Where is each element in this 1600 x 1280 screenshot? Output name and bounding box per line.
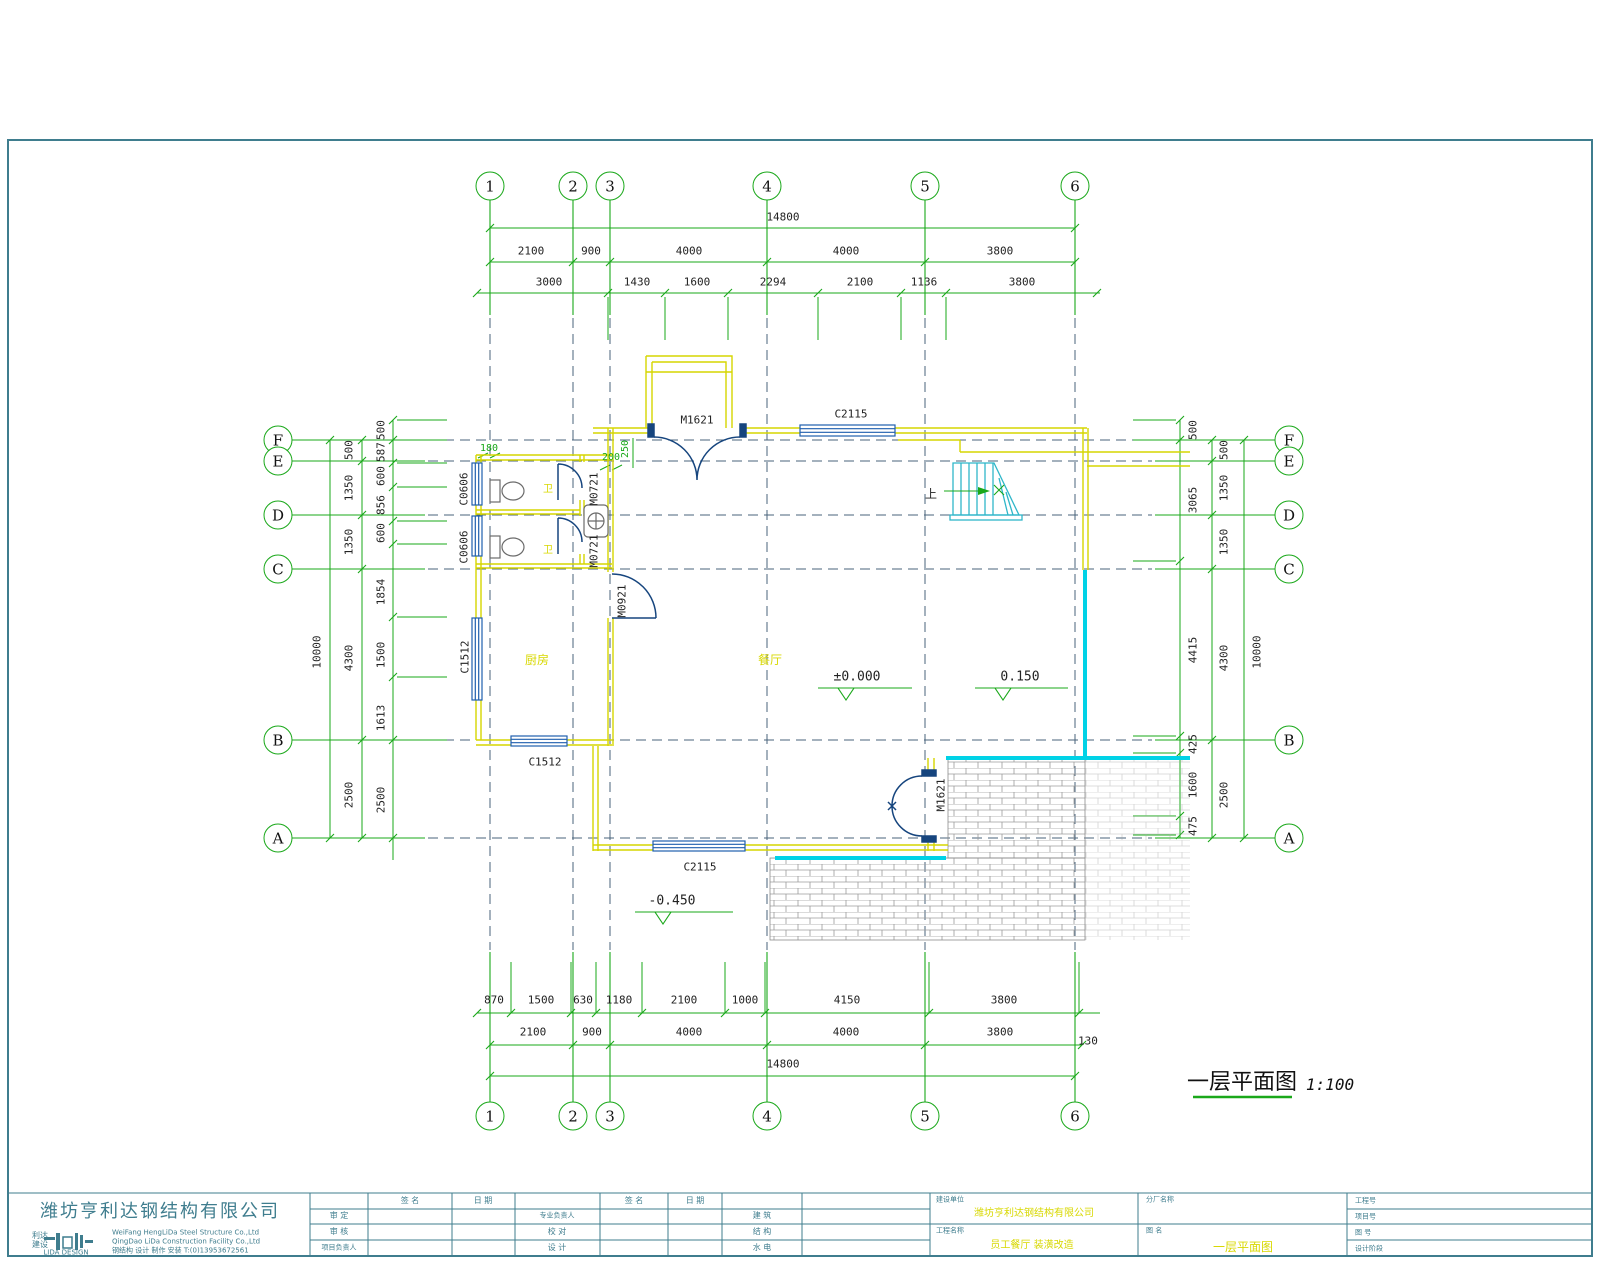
- room-bath-1: 卫: [543, 485, 553, 495]
- grid-bubble-2-top: 2: [559, 172, 588, 201]
- tb-row3-project-lead: 项目负责人: [322, 1245, 357, 1252]
- dim-top-r1-0: 2100: [518, 246, 545, 257]
- dim-top-r2-3: 2294: [760, 277, 787, 288]
- dim-right-mid-4: 2500: [1219, 782, 1230, 809]
- grid-bubble-3-bottom: 3: [596, 1102, 625, 1131]
- dim-right-mid-2: 1350: [1219, 529, 1230, 556]
- tb-row3-design: 设 计: [548, 1244, 567, 1252]
- label-window-bottom: C2115: [683, 862, 716, 873]
- dim-left-mid-4: 2500: [344, 782, 355, 809]
- company-name: 潍坊亨利达钢结构有限公司: [40, 1203, 280, 1221]
- tb-project-value: 员工餐厅 装潢改造: [990, 1241, 1073, 1251]
- dim-right-outer: 10000: [1252, 635, 1263, 668]
- label-window-kitchen-bottom: C1512: [528, 757, 561, 768]
- dim-right-in-0: 500: [1188, 420, 1199, 440]
- tb-no-label-0: 工程号: [1355, 1198, 1376, 1205]
- dim-top-r2-4: 2100: [847, 277, 874, 288]
- tb-owner-label: 建设单位: [936, 1197, 964, 1204]
- dim-left-mid-3: 4300: [344, 645, 355, 672]
- level-minus: -0.450: [649, 895, 696, 908]
- dim-left-in-6: 1500: [376, 642, 387, 669]
- label-door-terrace: M1621: [936, 778, 947, 811]
- dim-top-r2-1: 1430: [624, 277, 651, 288]
- label-door-bath-2: M0721: [589, 534, 600, 567]
- dim-left-in-3: 856: [376, 495, 387, 515]
- plan-geometry: [0, 0, 1600, 1280]
- terrace-upper: [948, 758, 1085, 858]
- dim-right-mid-0: 500: [1219, 440, 1230, 460]
- dim-top-r1-4: 3800: [987, 246, 1014, 257]
- dim-top-r1-1: 900: [581, 246, 601, 257]
- tb-owner-value: 潍坊亨利达钢结构有限公司: [974, 1209, 1094, 1219]
- dim-top-r2-6: 3800: [1009, 277, 1036, 288]
- dim-bot-r2-1: 900: [582, 1027, 602, 1038]
- dim-inline-200: 200: [602, 453, 620, 463]
- label-door-kitchen: M0921: [617, 584, 628, 617]
- grid-bubble-A-left: A: [264, 824, 293, 853]
- dim-bot-r1-2: 630: [573, 995, 593, 1006]
- room-dining: 餐厅: [758, 654, 782, 666]
- label-door-bath-1: M0721: [589, 472, 600, 505]
- grid-bubble-B-left: B: [264, 726, 293, 755]
- grid-bubble-A-right: A: [1275, 824, 1304, 853]
- grid-bubble-1-bottom: 1: [476, 1102, 505, 1131]
- company-en-1: WeiFang HengLiDa Steel Structure Co.,Ltd: [112, 1230, 259, 1237]
- dim-right-in-1: 3065: [1188, 487, 1199, 514]
- dim-left-mid-0: 500: [344, 440, 355, 460]
- tb-no-label-2: 图 号: [1355, 1230, 1371, 1237]
- tb-row2-proofread: 校 对: [548, 1228, 567, 1236]
- grid-bubble-5-bottom: 5: [911, 1102, 940, 1131]
- grid-bubble-6-top: 6: [1061, 172, 1090, 201]
- label-window-bath-2: C0606: [459, 530, 470, 563]
- grid-lines: [292, 200, 1275, 1102]
- dim-inline-180: 180: [480, 444, 498, 454]
- tb-row1-architecture: 建 筑: [753, 1212, 772, 1220]
- grid-bubble-1-top: 1: [476, 172, 505, 201]
- dim-right-mid-1: 1350: [1219, 475, 1230, 502]
- tb-row1-approve: 审 定: [330, 1212, 349, 1220]
- grid-bubble-D-left: D: [264, 501, 293, 530]
- dim-left-in-1: 587: [376, 442, 387, 462]
- dim-top-r2-2: 1600: [684, 277, 711, 288]
- dim-bot-r2-3: 4000: [833, 1027, 860, 1038]
- dim-top-r2-0: 3000: [536, 277, 563, 288]
- dim-top-r1-3: 4000: [833, 246, 860, 257]
- dim-right-in-4: 1600: [1188, 772, 1199, 799]
- company-logo-icon: [44, 1233, 93, 1250]
- dim-bot-r1-3: 1180: [606, 995, 633, 1006]
- tb-factory-label: 分厂名称: [1146, 1197, 1174, 1204]
- stair-up-label: 上: [925, 488, 937, 500]
- dim-left-mid-1: 1350: [344, 475, 355, 502]
- tb-sign-header-2: 签 名: [625, 1197, 644, 1205]
- dim-bot-r1-5: 1000: [732, 995, 759, 1006]
- grid-bubble-4-bottom: 4: [753, 1102, 782, 1131]
- dim-top-r1-2: 4000: [676, 246, 703, 257]
- tb-date-header-2: 日 期: [686, 1197, 705, 1205]
- company-services: 钢结构 设计 制作 安装 T:(0)13953672561: [112, 1248, 249, 1255]
- dim-bot-r2-2: 4000: [676, 1027, 703, 1038]
- logo-text-1: 利达: [32, 1232, 48, 1240]
- dim-left-in-0: 500: [376, 420, 387, 440]
- grid-bubble-2-bottom: 2: [559, 1102, 588, 1131]
- dim-right-in-2: 4415: [1188, 637, 1199, 664]
- terrace-lower: [770, 858, 1085, 940]
- grid-bubble-B-right: B: [1275, 726, 1304, 755]
- stair-arrowhead: [978, 487, 990, 495]
- dim-bot-r1-7: 3800: [991, 995, 1018, 1006]
- dim-bot-r1-6: 4150: [834, 995, 861, 1006]
- label-door-main: M1621: [680, 415, 713, 426]
- dim-right-in-5: 475: [1188, 816, 1199, 836]
- grid-bubble-4-top: 4: [753, 172, 782, 201]
- grid-bubble-6-bottom: 6: [1061, 1102, 1090, 1131]
- tb-project-label: 工程名称: [936, 1228, 964, 1235]
- dim-bot-r1-1: 1500: [528, 995, 555, 1006]
- tb-sign-header-1: 签 名: [401, 1197, 420, 1205]
- dim-left-in-2: 600: [376, 466, 387, 486]
- dim-top-total: 14800: [766, 212, 799, 223]
- drawing-sheet: 1 2 3 4 5 6 1 2 3 4 5 6 F E D C B A F E …: [0, 0, 1600, 1280]
- grid-bubble-D-right: D: [1275, 501, 1304, 530]
- windows: [472, 425, 895, 851]
- dim-bot-offset: 130: [1078, 1036, 1098, 1047]
- tb-drawing-value: 一层平面图: [1213, 1241, 1273, 1253]
- dim-top-r2-5: 1136: [911, 277, 938, 288]
- terrace-extension: [1085, 758, 1190, 940]
- tb-row2-structure: 结 构: [753, 1228, 772, 1236]
- dim-left-in-5: 1854: [376, 579, 387, 606]
- room-kitchen: 厨房: [525, 654, 549, 666]
- dim-left-in-7: 1613: [376, 705, 387, 732]
- plan-scale: 1:100: [1306, 1077, 1354, 1093]
- sheet-border: [8, 140, 1592, 1256]
- room-bath-2: 卫: [543, 546, 553, 556]
- dim-right-mid-3: 4300: [1219, 645, 1230, 672]
- tb-row3-mep: 水 电: [753, 1244, 772, 1252]
- grid-bubble-3-top: 3: [596, 172, 625, 201]
- label-window-bath-1: C0606: [459, 472, 470, 505]
- tb-drawing-label: 图 名: [1146, 1228, 1162, 1235]
- level-plus: 0.150: [1000, 671, 1039, 684]
- tb-row2-review: 审 核: [330, 1228, 349, 1236]
- grid-bubble-E-left: E: [264, 447, 293, 476]
- dim-bot-r2-0: 2100: [520, 1027, 547, 1038]
- plan-title: 一层平面图: [1187, 1072, 1297, 1094]
- dim-left-in-4: 600: [376, 523, 387, 543]
- label-window-kitchen-left: C1512: [460, 640, 471, 673]
- tb-no-label-3: 设计阶段: [1355, 1246, 1383, 1253]
- tb-row1-discipline-lead: 专业负责人: [540, 1213, 575, 1220]
- doors: [558, 424, 936, 842]
- logo-en: LIDA DESIGN: [43, 1250, 88, 1257]
- dim-bot-r2-4: 3800: [987, 1027, 1014, 1038]
- dim-bot-r1-0: 870: [484, 995, 504, 1006]
- grid-bubble-5-top: 5: [911, 172, 940, 201]
- dim-inline-250: 250: [621, 440, 631, 458]
- tb-date-header-1: 日 期: [474, 1197, 493, 1205]
- dim-right-in-3: 425: [1188, 734, 1199, 754]
- level-zero: ±0.000: [834, 671, 881, 684]
- dim-bot-total: 14800: [766, 1059, 799, 1070]
- dim-bot-r1-4: 2100: [671, 995, 698, 1006]
- dim-left-outer: 10000: [312, 635, 323, 668]
- grid-bubble-E-right: E: [1275, 447, 1304, 476]
- grid-bubble-C-left: C: [264, 555, 293, 584]
- dim-left-mid-2: 1350: [344, 529, 355, 556]
- tb-no-label-1: 项目号: [1355, 1214, 1376, 1221]
- company-en-2: QingDao LiDa Construction Facility Co.,L…: [112, 1239, 260, 1246]
- grid-bubble-C-right: C: [1275, 555, 1304, 584]
- dim-left-in-8: 2500: [376, 787, 387, 814]
- label-window-top: C2115: [834, 409, 867, 420]
